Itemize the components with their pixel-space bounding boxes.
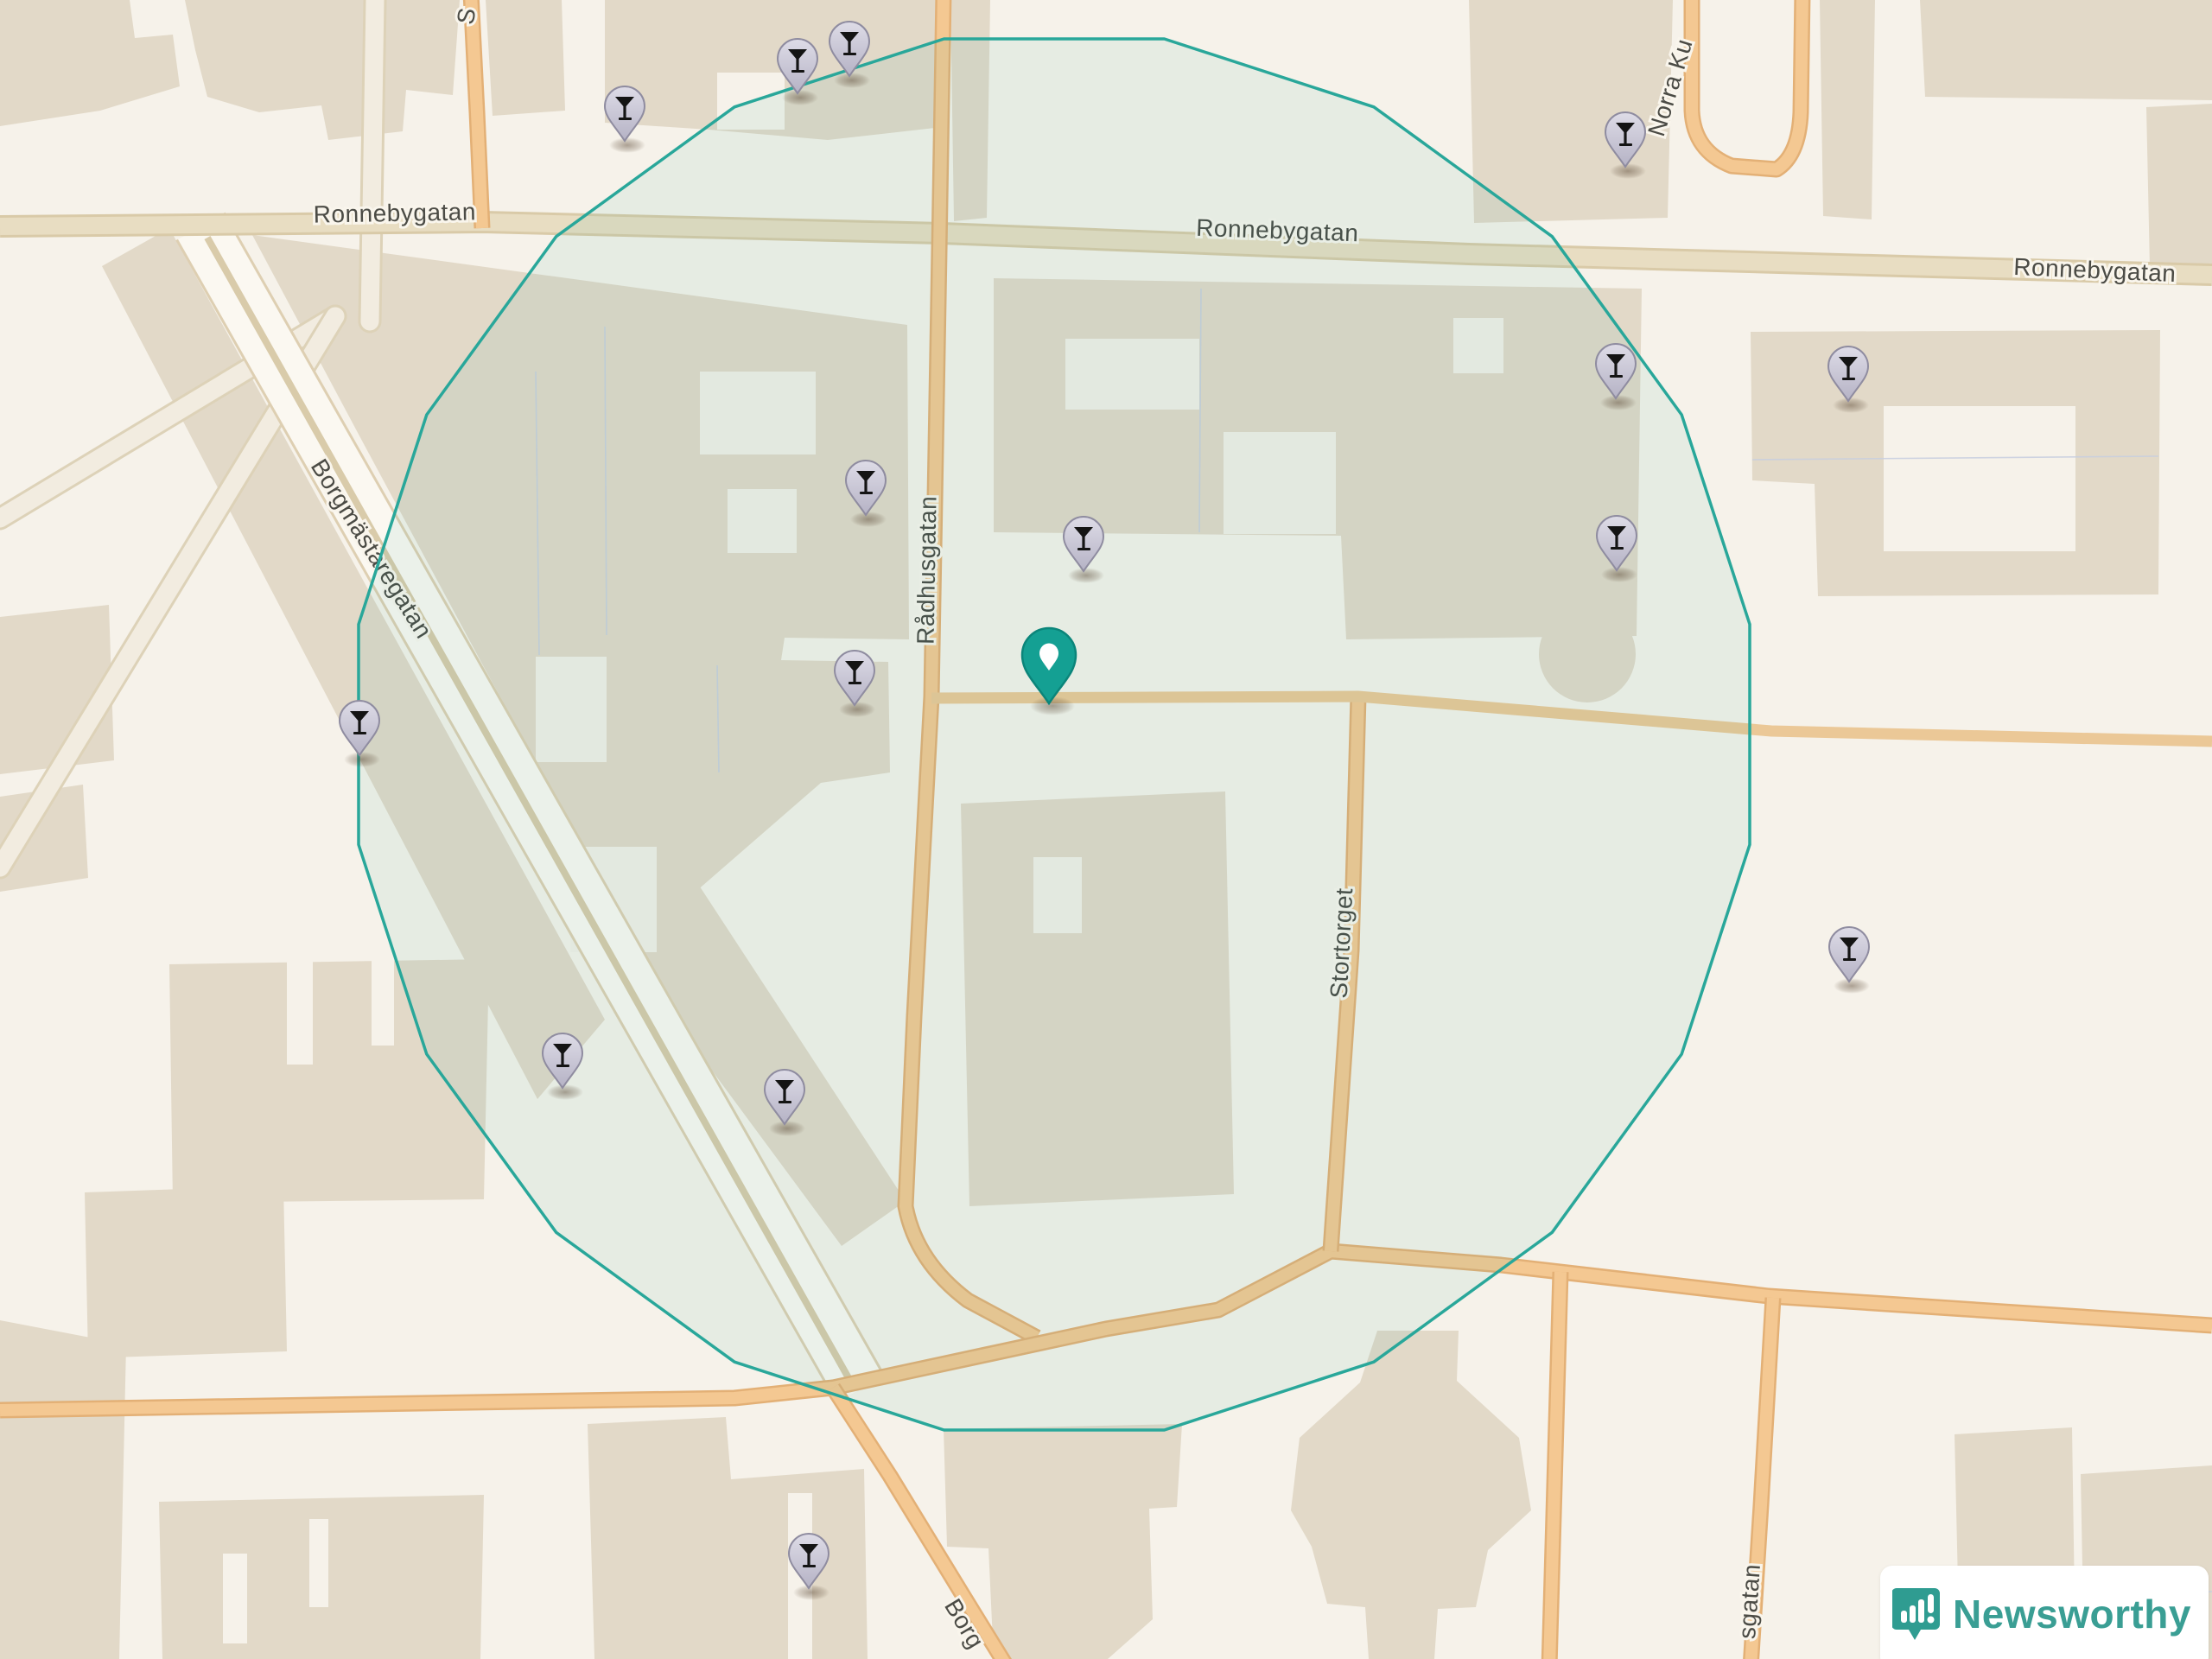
pin-shadow [1833,397,1869,413]
venue-pin[interactable] [605,86,645,153]
venue-pin[interactable] [1828,346,1869,413]
pin-shadow [1834,978,1870,994]
pin-shadow [1068,568,1104,583]
venue-pin[interactable] [1064,517,1104,583]
pin-shadow [793,1585,829,1600]
radius-circle-overlay [359,39,1750,1430]
pin-shadow [850,512,887,527]
watermark-brand-text: Newsworthy [1953,1591,2191,1637]
venue-pin[interactable] [1605,112,1646,179]
pin-shadow [1610,163,1646,179]
pin-shadow [1600,395,1637,410]
pin-shadow [547,1084,583,1100]
street-label: sgatan [1733,1563,1765,1640]
street-label: Ronnebygatan [313,198,476,227]
venue-pin[interactable] [340,701,380,767]
pin-shadow [834,73,870,88]
map-canvas[interactable]: RonnebygatanRonnebygatanRonnebygatanBorg… [0,0,2212,1659]
newsworthy-logo-icon [1892,1586,1941,1642]
pin-shadow [769,1121,805,1136]
venue-pin[interactable] [1829,927,1870,994]
venue-pin[interactable] [1597,516,1637,582]
pin-shadow [1601,567,1637,582]
venue-pin[interactable] [835,651,875,717]
pin-shadow [839,702,875,717]
overlay-layer [359,39,1750,1430]
venue-pin[interactable] [778,39,818,105]
venue-pin[interactable] [789,1534,829,1600]
venue-pin[interactable] [846,461,887,527]
newsworthy-watermark: Newsworthy [1880,1566,2209,1659]
map-viewport[interactable]: RonnebygatanRonnebygatanRonnebygatanBorg… [0,0,2212,1659]
venue-pin[interactable] [829,22,870,88]
pin-shadow [782,90,818,105]
venue-pin[interactable] [765,1070,805,1136]
venue-pin[interactable] [1596,344,1637,410]
pin-shadow [609,137,645,153]
venue-pin[interactable] [543,1033,583,1100]
pin-shadow [344,752,380,767]
